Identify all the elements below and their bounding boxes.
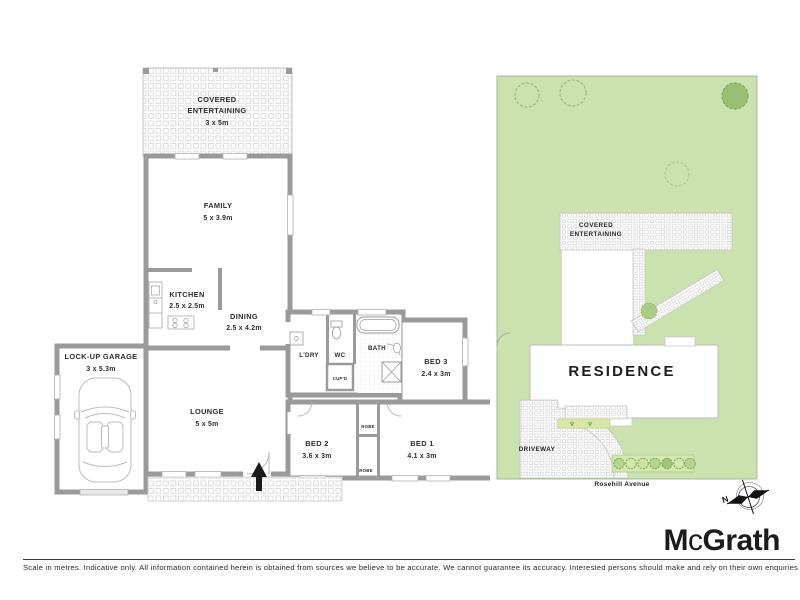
logo-rest: Grath	[702, 524, 780, 557]
room-label: COVERED	[198, 95, 237, 104]
porch	[148, 477, 342, 501]
robe-label-1: ROBE	[361, 424, 375, 429]
footer-divider	[23, 559, 795, 560]
logo-m: M	[663, 524, 688, 557]
room-dims-bed1: 4.1 x 3m	[407, 453, 436, 460]
room-dims-garage: 3 x 5.3m	[86, 366, 115, 373]
compass-north-label: N	[721, 493, 730, 504]
logo-c: c	[688, 524, 703, 557]
floor-plan: COVERED ENTERTAINING 3 x 5m	[50, 60, 490, 510]
street-label: Rosehill Avenue	[594, 481, 649, 488]
disclaimer-text: Scale in metres. Indicative only. All in…	[23, 563, 798, 572]
room-label-cupboard: CUP'D	[333, 376, 348, 381]
robe-label-2: ROBE	[359, 468, 373, 473]
room-label-bath: BATH	[368, 345, 386, 352]
room-label-bed2: BED 2	[305, 439, 329, 448]
site-driveway-label: DRIVEWAY	[519, 446, 556, 453]
room-dims-bed2: 3.6 x 3m	[302, 453, 331, 460]
room-label-family: FAMILY	[204, 201, 233, 210]
room-label-lounge: LOUNGE	[190, 407, 224, 416]
car-icon	[75, 378, 136, 482]
shrub-icon	[641, 303, 657, 319]
room-label-laundry: L'DRY	[299, 352, 319, 359]
room-label-dining: DINING	[230, 312, 258, 321]
room-label-bed3: BED 3	[424, 357, 448, 366]
room-dims-family: 5 x 3.9m	[203, 215, 232, 222]
room-dims: 3 x 5m	[206, 120, 229, 127]
site-hedge	[558, 419, 610, 428]
room-label-garage: LOCK-UP GARAGE	[65, 352, 138, 361]
room-dims-dining: 2.5 x 4.2m	[226, 325, 261, 332]
room-label-wc: WC	[335, 352, 346, 359]
site-covered-label-1: COVERED	[579, 222, 613, 229]
compass-icon: N	[721, 473, 775, 521]
site-building-wing	[562, 249, 633, 345]
site-paved-entry	[565, 406, 627, 419]
mcgrath-logo: McGrath	[622, 526, 780, 556]
site-covered-label-2: ENTERTAINING	[570, 231, 622, 238]
site-residence-step-top	[665, 337, 695, 346]
site-residence-label: RESIDENCE	[568, 363, 675, 380]
room-dims-kitchen: 2.5 x 2.5m	[169, 303, 204, 310]
floorplan-page: COVERED ENTERTAINING 3 x 5m	[0, 0, 800, 600]
room-dims-bed3: 2.4 x 3m	[421, 371, 450, 378]
room-label-kitchen: KITCHEN	[169, 290, 204, 299]
site-plan: COVERED ENTERTAINING RESIDENCE DRIVEWAY	[490, 70, 790, 525]
room-label: ENTERTAINING	[187, 106, 246, 115]
room-covered-entertaining: COVERED ENTERTAINING 3 x 5m	[143, 68, 292, 156]
room-dims-lounge: 5 x 5m	[196, 421, 219, 428]
room-label-bed1: BED 1	[410, 439, 434, 448]
